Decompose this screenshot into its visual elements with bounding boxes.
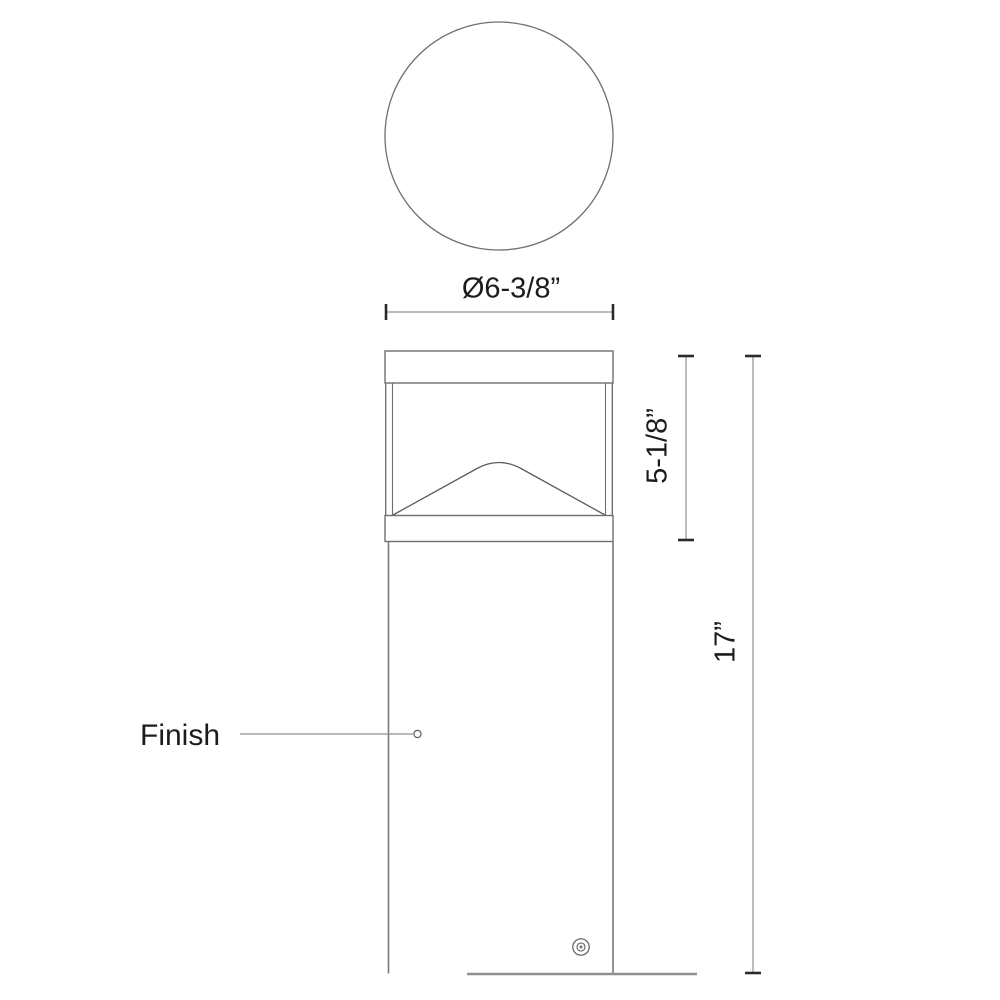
bollard-body bbox=[389, 542, 614, 974]
bollard-head bbox=[385, 351, 613, 542]
finish-leader-line bbox=[240, 730, 421, 737]
diameter-dimension-line bbox=[386, 304, 613, 320]
technical-drawing-page: Ø6-3/8” 5-1/8” 17” Finish bbox=[0, 0, 1000, 1000]
finish-callout-label: Finish bbox=[140, 721, 220, 751]
head-top-cap bbox=[385, 351, 613, 383]
head-bottom-band bbox=[385, 516, 613, 542]
overall-height-dimension-label: 17” bbox=[712, 621, 741, 663]
leader-endpoint-circle bbox=[414, 730, 421, 737]
reflector-cone bbox=[393, 463, 605, 516]
bollard-drawing bbox=[0, 0, 1000, 1000]
head-height-dimension-line bbox=[678, 356, 694, 540]
diameter-dimension-label: Ø6-3/8” bbox=[462, 275, 560, 304]
overall-height-dimension-line bbox=[745, 356, 761, 973]
set-screw bbox=[573, 939, 589, 955]
head-height-dimension-label: 5-1/8” bbox=[644, 408, 673, 484]
top-view-circle bbox=[385, 22, 613, 250]
